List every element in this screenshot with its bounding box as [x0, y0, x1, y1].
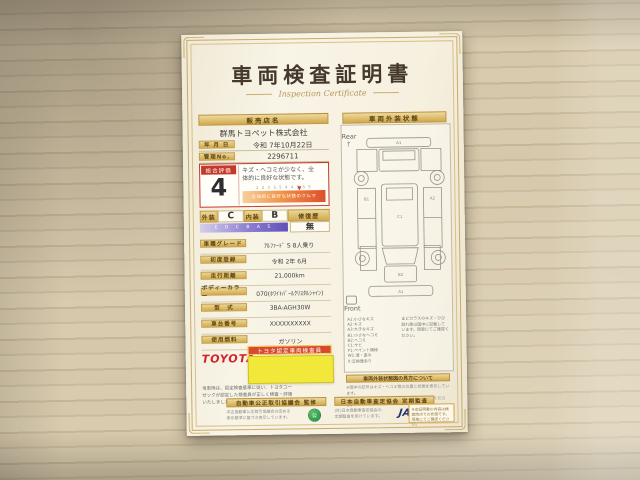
row-value: 令和 2年 6月 [248, 256, 330, 266]
interior-grade: B [262, 210, 288, 222]
diagram-legend-right: まどガラスのキズ・ひび 割れ等は図中に記載して います。現車にてご確認ください。 [401, 315, 449, 338]
zone-label: A1 [398, 289, 404, 294]
dealer-header-bar: 販売店名 [198, 113, 328, 126]
certified-inspector-badge: トヨタ認定車両検査員 [248, 345, 332, 355]
interior-label: 内装 [244, 210, 262, 222]
management-no-value: 2296711 [237, 152, 329, 161]
exterior-header-bar: 車両外装状態 [342, 111, 446, 123]
info-row-body-color: ボディーカラー 070(ﾎﾜｲﾄﾊﾟｰﾙｸﾘｽﾀﾙｼｬｲﾝ) [201, 285, 331, 303]
evaluation-description: キズ・ヘコミが少なく、全 体的に良好な状態です。 [242, 166, 326, 184]
photo-background-wood-table: 車両検査証明書 Inspection Certificate 販売店名 群馬トヨ… [0, 0, 640, 480]
inspection-certificate: 車両検査証明書 Inspection Certificate 販売店名 群馬トヨ… [181, 31, 468, 436]
diagram-legend-left: A1:小さなキズ A2:キズ A3:大きなキズ B1:小さなヘコミ B2:ヘコミ… [347, 316, 400, 363]
front-fender-left [360, 246, 376, 270]
car-exterior-diagram: A1 B1 A2 C1 B2 A1 [353, 133, 447, 302]
wheel-icon [431, 250, 445, 264]
fair-trade-council-badge: 自動車公正取引協議会 監修 [226, 397, 326, 407]
info-row-model-code: 型 式 3BA-AGH30W [201, 301, 331, 319]
overall-evaluation-box: 総合評価 4 キズ・ヘコミが少なく、全 体的に良好な状態です。 1 2 3 3.… [199, 162, 330, 208]
divider [238, 165, 240, 205]
row-label: 型 式 [201, 303, 247, 312]
repair-history-label: 修復歴 [288, 209, 330, 222]
exterior-grade: C [218, 210, 244, 222]
evaluation-scale-bar: 全体的に良好な状態のクルマ [242, 190, 325, 203]
row-label: 車種グレード [200, 239, 246, 248]
corner-ornament [439, 33, 460, 54]
row-value: 3BA-AGH30W [249, 304, 331, 312]
jaai-audit-note: (社)日本自動車査定協会の 定期監査を受けています。 [334, 407, 394, 419]
info-row-chassis-no: 車台番号 XXXXXXXXXX [201, 317, 331, 335]
row-label: 車台番号 [201, 319, 247, 328]
row-label: ボディーカラー [201, 287, 247, 296]
footer-note-box: ※本証明書の内容は検 査時点での状態です。 現車にてご確認ください。 [408, 403, 454, 423]
zone-label: B2 [398, 272, 404, 277]
inspector-signature-sticker [248, 355, 334, 384]
corner-ornament [183, 37, 204, 58]
fair-trade-council-note: 中古自動車公正取引協議会の定める 表示基準に基づき表示しています。 [226, 408, 302, 420]
row-label: 走行距離 [201, 271, 247, 280]
wheel-icon [354, 171, 368, 185]
row-value: 070(ﾎﾜｲﾄﾊﾟｰﾙｸﾘｽﾀﾙｼｬｲﾝ) [249, 288, 331, 298]
date-label: 年 月 日 [199, 140, 235, 149]
wheel-icon [355, 251, 369, 265]
row-value: 21,000km [249, 272, 331, 280]
dealer-name: 群馬トヨペット株式会社 [199, 127, 329, 140]
zone-label: A1 [396, 140, 402, 145]
ornament-dash [247, 94, 273, 95]
rear-window [383, 151, 415, 160]
fair-trade-council-emblem-icon: 公 [308, 409, 320, 421]
zone-label: B1 [364, 196, 370, 201]
certificate-title: 車両検査証明書 [182, 57, 463, 91]
rear-quarter-right [421, 148, 441, 170]
ornament-dash [373, 92, 399, 93]
repair-history-value: 無 [290, 221, 330, 233]
exterior-label: 外装 [200, 210, 218, 222]
front-fender-right [424, 245, 440, 269]
row-label: 初度登録 [200, 255, 246, 264]
howto-header-bar: 車両外装状態図の見方について [346, 373, 450, 382]
info-row-grade: 車種グレード ｱﾙﾌｧｰﾄﾞ S 8人乗り [200, 237, 330, 255]
front-label: Front [344, 305, 361, 313]
row-value: ｱﾙﾌｧｰﾄﾞ S 8人乗り [248, 240, 330, 250]
rear-quarter-left [357, 149, 377, 171]
wheel-icon [358, 175, 364, 181]
grade-scale-bar: E D C B A S [200, 223, 288, 233]
wheel-icon [434, 174, 440, 180]
wheel-icon [430, 170, 444, 184]
zone-label: C1 [397, 214, 403, 219]
info-row-first-registration: 初度登録 令和 2年 6月 [200, 253, 330, 271]
rear-arrow-icon: ↑ [346, 141, 352, 149]
sunroof [386, 188, 412, 200]
corner-ornament [188, 413, 209, 434]
zone-label: A2 [430, 195, 436, 200]
row-value: XXXXXXXXXX [249, 320, 331, 328]
windshield [382, 248, 418, 265]
management-no-label: 管理No. [199, 152, 235, 161]
overall-evaluation-score: 4 [201, 175, 236, 199]
row-label: 使用燃料 [201, 335, 247, 344]
